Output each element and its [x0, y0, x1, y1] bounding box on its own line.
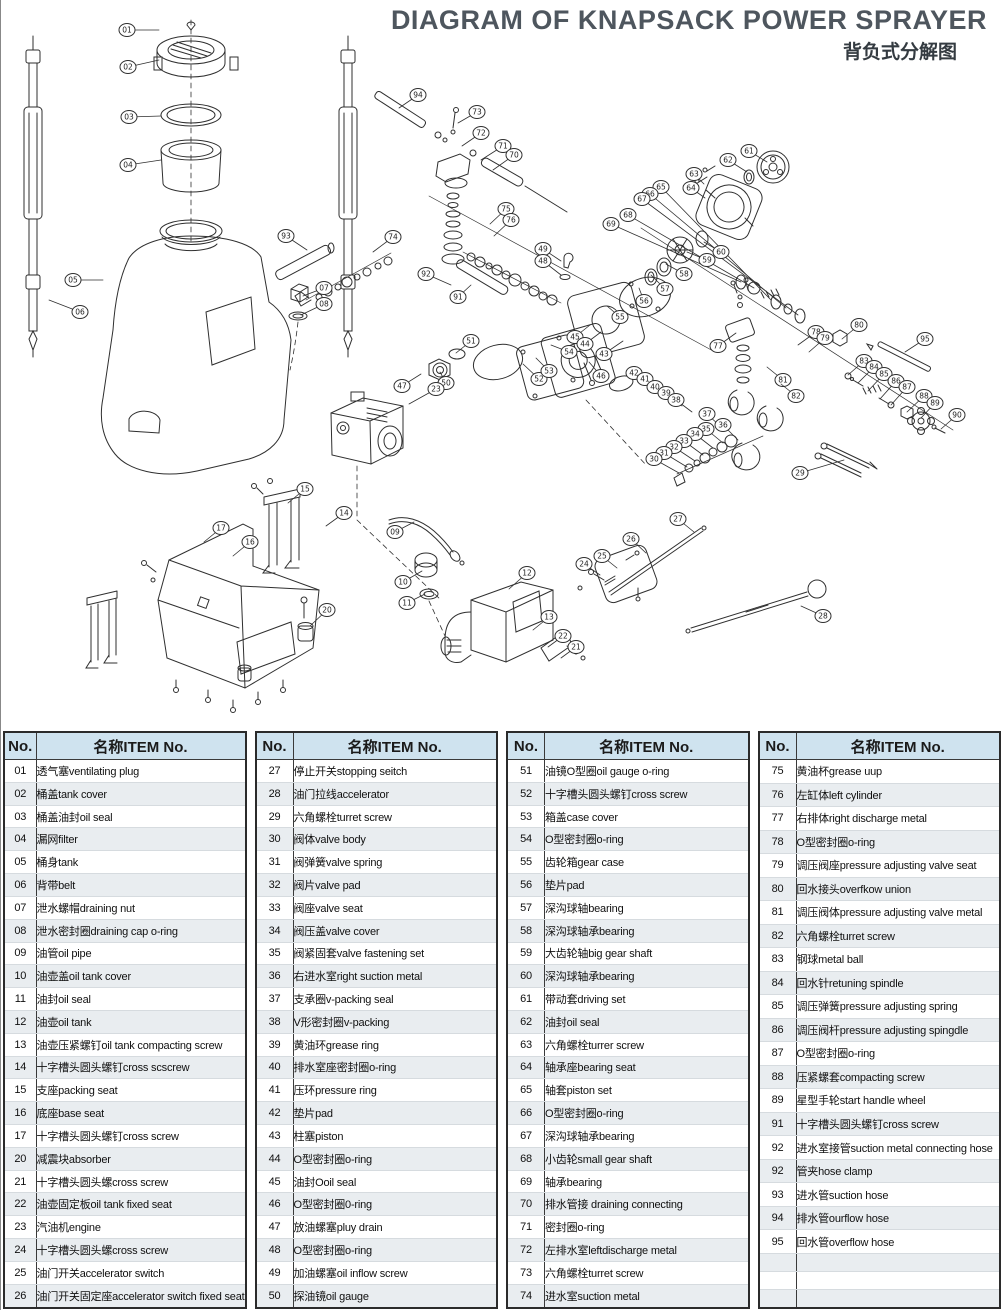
part-no-cell: 92 [759, 1159, 797, 1183]
part-item-cell: 右进水室right suction metal [293, 965, 497, 988]
table-row: 51油镜O型圈oil gauge o-ring [507, 760, 749, 783]
part-item-cell: 支承圈v-packing seal [293, 988, 497, 1011]
table-row: 13油壶压紧螺钉oil tank compacting screw [4, 1033, 246, 1056]
part-callout-number: 22 [558, 632, 568, 641]
part-no-cell: 86 [759, 1018, 797, 1042]
oil-tank-drawing [415, 553, 585, 663]
part-callout-number: 55 [615, 313, 625, 322]
table-row: 10油壶盖oil tank cover [4, 965, 246, 988]
table-row: 89星型手轮start handle wheel [759, 1089, 1001, 1113]
table-row: 64轴承座bearing seat [507, 1056, 749, 1079]
no-column-header: No. [256, 732, 294, 760]
part-no-cell: 94 [759, 1206, 797, 1230]
part-callout-number: 60 [716, 248, 726, 257]
part-item-cell: 回水管overflow hose [796, 1230, 1000, 1254]
part-no-cell: 47 [256, 1216, 294, 1239]
part-no-cell: 34 [256, 919, 294, 942]
part-no-cell: 65 [507, 1079, 545, 1102]
table-row: 75黄油杯grease uup [759, 760, 1001, 784]
table-row: 16底座base seat [4, 1102, 246, 1125]
part-no-cell: 85 [759, 995, 797, 1019]
part-no-cell [759, 1289, 797, 1308]
part-item-cell: 排水管ourflow hose [796, 1206, 1000, 1230]
part-no-cell: 28 [256, 782, 294, 805]
part-item-cell: 排水管接 draining connecting [545, 1193, 749, 1216]
part-callout-number: 04 [123, 161, 133, 170]
part-no-cell: 36 [256, 965, 294, 988]
no-column-header: No. [4, 732, 36, 760]
table-row: 69轴承bearing [507, 1170, 749, 1193]
part-item-cell: 油门开关accelerator switch [36, 1261, 245, 1284]
table-header-row: No.名称ITEM No. [507, 732, 749, 760]
part-no-cell: 57 [507, 896, 545, 919]
part-no-cell: 68 [507, 1147, 545, 1170]
part-callout-number: 10 [398, 578, 408, 587]
part-no-cell: 03 [4, 805, 36, 828]
part-callout-number: 57 [660, 285, 670, 294]
table-row: 76左缸体left cylinder [759, 783, 1001, 807]
accelerator-plate-drawing [578, 526, 706, 605]
part-no-cell: 71 [507, 1216, 545, 1239]
part-item-cell: 回水针retuning spindle [796, 971, 1000, 995]
part-no-cell: 23 [4, 1216, 36, 1239]
item-column-header: 名称ITEM No. [796, 732, 1000, 760]
part-callout-number: 70 [509, 151, 519, 160]
part-no-cell: 04 [4, 828, 36, 851]
part-no-cell: 79 [759, 854, 797, 878]
part-item-cell: 泄水密封圈draining cap o-ring [36, 919, 245, 942]
part-callout-number: 25 [597, 552, 607, 561]
table-row: 40排水室座密封圈o-ring [256, 1056, 498, 1079]
table-row: 86调压阀杆pressure adjusting spingdle [759, 1018, 1001, 1042]
table-row: 22油壶固定板oil tank fixed seat [4, 1193, 246, 1216]
table-row: 81调压阀体pressure adjusting valve metal [759, 901, 1001, 925]
part-no-cell: 25 [4, 1261, 36, 1284]
table-row: 06背带belt [4, 874, 246, 897]
part-callout-number: 52 [534, 375, 544, 384]
part-item-cell: 泄水螺帽draining nut [36, 896, 245, 919]
part-item-cell: O型密封圈0-ring [293, 1193, 497, 1216]
page-header: DIAGRAM OF KNAPSACK POWER SPRAYER 背负式分解图 [1, 5, 987, 64]
shoulder-strap-drawing-right [339, 36, 357, 357]
part-item-cell: 油壶压紧螺钉oil tank compacting screw [36, 1033, 245, 1056]
part-no-cell: 55 [507, 851, 545, 874]
part-no-cell: 45 [256, 1170, 294, 1193]
table-row: 47放油螺塞pluy drain [256, 1216, 498, 1239]
part-callout-number: 36 [718, 421, 728, 430]
part-item-cell: 十字槽头圆头螺钉cross screw [796, 1112, 1000, 1136]
part-no-cell: 70 [507, 1193, 545, 1216]
part-item-cell: 箱盖case cover [545, 805, 749, 828]
table-row [759, 1271, 1001, 1289]
part-callout-number: 06 [75, 308, 85, 317]
part-no-cell: 78 [759, 830, 797, 854]
table-row: 48O型密封圈o-ring [256, 1239, 498, 1262]
part-callout-number: 17 [216, 524, 226, 533]
part-no-cell: 54 [507, 828, 545, 851]
part-no-cell: 14 [4, 1056, 36, 1079]
table-row: 52十字槽头圆头螺钉cross screw [507, 782, 749, 805]
part-no-cell: 66 [507, 1102, 545, 1125]
table-row: 21十字槽头圆头螺cross screw [4, 1170, 246, 1193]
part-item-cell: 加油螺塞oil inflow screw [293, 1261, 497, 1284]
pump-body-drawing [429, 253, 676, 408]
part-callout-number: 38 [671, 396, 681, 405]
part-item-cell: 油封oil seal [36, 988, 245, 1011]
table-row: 71密封圈o-ring [507, 1216, 749, 1239]
part-callout-number: 77 [713, 342, 723, 351]
table-row: 92管夹hose clamp [759, 1159, 1001, 1183]
table-row: 91十字槽头圆头螺钉cross screw [759, 1112, 1001, 1136]
part-callout-number: 16 [245, 538, 255, 547]
part-callout-number: 74 [388, 233, 398, 242]
table-row: 29六角螺栓turret screw [256, 805, 498, 828]
part-callout-number: 54 [564, 348, 574, 357]
part-item-cell: 支座packing seat [36, 1079, 245, 1102]
table-row: 94排水管ourflow hose [759, 1206, 1001, 1230]
parts-table-group-4: No.名称ITEM No.75黄油杯grease uup76左缸体left cy… [758, 731, 1002, 1309]
part-callout-number: 30 [649, 455, 659, 464]
part-item-cell: 六角螺栓turrer screw [545, 1033, 749, 1056]
part-callout-number: 94 [413, 91, 423, 100]
part-callout-number: 56 [639, 297, 649, 306]
table-row: 27停止开关stopping seitch [256, 760, 498, 783]
table-row: 54O型密封圈o-ring [507, 828, 749, 851]
table-row: 50探油镜oil gauge [256, 1284, 498, 1308]
table-row: 63六角螺栓turrer screw [507, 1033, 749, 1056]
part-item-cell: 进水室suction metal [545, 1284, 749, 1308]
table-row [759, 1253, 1001, 1271]
table-header-row: No.名称ITEM No. [256, 732, 498, 760]
table-row: 82六角螺栓turret screw [759, 924, 1001, 948]
part-item-cell: 小齿轮small gear shaft [545, 1147, 749, 1170]
part-no-cell: 48 [256, 1239, 294, 1262]
part-callout-number: 63 [689, 170, 699, 179]
part-callout-number: 11 [402, 599, 412, 608]
part-no-cell: 62 [507, 1010, 545, 1033]
pressure-valve-drawing [725, 278, 945, 435]
part-no-cell: 21 [4, 1170, 36, 1193]
item-column-header: 名称ITEM No. [36, 732, 245, 760]
table-row: 92进水室接管suction metal connecting hose [759, 1136, 1001, 1160]
table-row: 04漏网filter [4, 828, 246, 851]
table-row: 36右进水室right suction metal [256, 965, 498, 988]
part-no-cell: 84 [759, 971, 797, 995]
part-no-cell: 41 [256, 1079, 294, 1102]
part-no-cell: 29 [256, 805, 294, 828]
table-row: 68小齿轮small gear shaft [507, 1147, 749, 1170]
part-callout-number: 65 [656, 183, 666, 192]
part-callout-number: 76 [506, 216, 516, 225]
part-no-cell: 42 [256, 1102, 294, 1125]
table-row: 74进水室suction metal [507, 1284, 749, 1308]
part-item-cell: 黄油环grease ring [293, 1033, 497, 1056]
valve-stack-drawing [436, 108, 567, 265]
no-column-header: No. [507, 732, 545, 760]
part-item-cell: 调压阀杆pressure adjusting spingdle [796, 1018, 1000, 1042]
part-no-cell: 80 [759, 877, 797, 901]
base-frame-drawing [158, 524, 319, 688]
part-no-cell: 11 [4, 988, 36, 1011]
part-callout-number: 27 [673, 515, 683, 524]
part-callout-number: 73 [472, 108, 482, 117]
part-item-cell: 阀弹簧valve spring [293, 851, 497, 874]
part-item-cell: 钢球metal ball [796, 948, 1000, 972]
part-no-cell: 56 [507, 874, 545, 897]
part-no-cell: 02 [4, 782, 36, 805]
gear-train-drawing [645, 151, 805, 323]
part-item-cell: 六角螺栓turret screw [545, 1261, 749, 1284]
part-callout-number: 87 [902, 383, 912, 392]
table-row: 93进水管suction hose [759, 1183, 1001, 1207]
part-callout-number: 89 [930, 399, 940, 408]
part-item-cell: 油壶oil tank [36, 1010, 245, 1033]
part-callout-number: 48 [538, 257, 548, 266]
part-item-cell: 油门拉线accelerator [293, 782, 497, 805]
part-item-cell: 阀座valve seat [293, 896, 497, 919]
no-column-header: No. [759, 732, 797, 760]
table-row: 58深沟球轴承bearing [507, 919, 749, 942]
part-item-cell: 大齿轮轴big gear shaft [545, 942, 749, 965]
part-item-cell: 六角螺栓turret screw [796, 924, 1000, 948]
part-no-cell: 08 [4, 919, 36, 942]
part-no-cell: 93 [759, 1183, 797, 1207]
table-row: 59大齿轮轴big gear shaft [507, 942, 749, 965]
table-row: 23汽油机engine [4, 1216, 246, 1239]
parts-table-group-1: No.名称ITEM No.01透气塞ventilating plug02桶盖ta… [3, 731, 247, 1309]
table-row: 15支座packing seat [4, 1079, 246, 1102]
part-item-cell: 停止开关stopping seitch [293, 760, 497, 783]
part-callout-number: 29 [795, 469, 805, 478]
part-item-cell: 十字槽头圆头螺cross screw [36, 1239, 245, 1262]
part-callout-number: 53 [544, 367, 554, 376]
shoulder-strap-drawing [24, 36, 42, 357]
part-item-cell: O型密封圈o-ring [293, 1239, 497, 1262]
part-callout-number: 51 [466, 337, 476, 346]
table-header-row: No.名称ITEM No. [4, 732, 246, 760]
part-callout-number: 67 [637, 195, 647, 204]
part-item-cell: 密封圈o-ring [545, 1216, 749, 1239]
part-item-cell: V形密封圈v-packing [293, 1010, 497, 1033]
table-row: 44O型密封圈o-ring [256, 1147, 498, 1170]
part-callout-number: 92 [421, 270, 431, 279]
part-callout-number: 12 [522, 569, 532, 578]
oil-pipe-drawing [389, 518, 464, 565]
part-no-cell: 69 [507, 1170, 545, 1193]
part-no-cell: 10 [4, 965, 36, 988]
table-row: 77右排体right discharge metal [759, 807, 1001, 831]
part-no-cell: 51 [507, 760, 545, 783]
part-item-cell: 油壶固定板oil tank fixed seat [36, 1193, 245, 1216]
part-no-cell: 40 [256, 1056, 294, 1079]
part-callout-number: 20 [322, 606, 332, 615]
part-item-cell: 垫片pad [293, 1102, 497, 1125]
part-item-cell: 深沟球轴承bearing [545, 919, 749, 942]
part-item-cell: O型密封圈o-ring [545, 828, 749, 851]
part-no-cell: 95 [759, 1230, 797, 1254]
table-row: 53箱盖case cover [507, 805, 749, 828]
part-no-cell: 07 [4, 896, 36, 919]
part-no-cell: 88 [759, 1065, 797, 1089]
part-item-cell: 油镜O型圈oil gauge o-ring [545, 760, 749, 783]
part-item-cell: 桶身tank [36, 851, 245, 874]
part-item-cell: 桶盖tank cover [36, 782, 245, 805]
table-row: 01透气塞ventilating plug [4, 760, 246, 783]
part-callout-number: 75 [501, 205, 511, 214]
part-item-cell [796, 1253, 1000, 1271]
item-column-header: 名称ITEM No. [293, 732, 497, 760]
table-row: 12油壶oil tank [4, 1010, 246, 1033]
table-row: 34阀压盖valve cover [256, 919, 498, 942]
part-no-cell: 33 [256, 896, 294, 919]
part-no-cell: 53 [507, 805, 545, 828]
part-item-cell: 放油螺塞pluy drain [293, 1216, 497, 1239]
table-row: 24十字槽头圆头螺cross screw [4, 1239, 246, 1262]
part-callout-number: 90 [952, 411, 962, 420]
part-item-cell: 阀紧固套valve fastening set [293, 942, 497, 965]
part-callout-number: 71 [498, 142, 508, 151]
part-no-cell: 73 [507, 1261, 545, 1284]
table-row: 62油封oil seal [507, 1010, 749, 1033]
part-item-cell: 进水室接管suction metal connecting hose [796, 1136, 1000, 1160]
part-no-cell: 60 [507, 965, 545, 988]
table-row: 80回水接头overfkow union [759, 877, 1001, 901]
part-no-cell: 58 [507, 919, 545, 942]
part-no-cell: 46 [256, 1193, 294, 1216]
part-callout-number: 44 [580, 340, 590, 349]
table-row: 78O型密封圈o-ring [759, 830, 1001, 854]
part-item-cell: 油管oil pipe [36, 942, 245, 965]
part-item-cell [796, 1271, 1000, 1289]
part-no-cell: 24 [4, 1239, 36, 1262]
part-item-cell: O型密封圈o-ring [293, 1147, 497, 1170]
part-item-cell: O型密封圈o-ring [545, 1102, 749, 1125]
part-no-cell: 83 [759, 948, 797, 972]
table-row: 03桶盖油封oil seal [4, 805, 246, 828]
part-no-cell: 74 [507, 1284, 545, 1308]
part-callout-number: 80 [854, 321, 864, 330]
part-callout-number: 69 [606, 220, 616, 229]
table-row: 07泄水螺帽draining nut [4, 896, 246, 919]
part-item-cell: 调压阀座pressure adjusting valve seat [796, 854, 1000, 878]
part-item-cell: 漏网filter [36, 828, 245, 851]
part-no-cell: 61 [507, 988, 545, 1011]
exploded-diagram: 0102030405060708939473727170636465666768… [1, 0, 1002, 730]
table-row: 02桶盖tank cover [4, 782, 246, 805]
table-row: 11油封oil seal [4, 988, 246, 1011]
diagram-area: 0102030405060708939473727170636465666768… [1, 0, 1002, 730]
part-no-cell: 27 [256, 760, 294, 783]
table-row: 39黄油环grease ring [256, 1033, 498, 1056]
part-item-cell: 深沟球轴bearing [545, 896, 749, 919]
part-callout-number: 91 [453, 293, 463, 302]
part-item-cell: 十字槽头圆头螺钉cross screw [36, 1125, 245, 1148]
part-callout-number: 08 [319, 300, 329, 309]
table-row: 09油管oil pipe [4, 942, 246, 965]
part-no-cell: 09 [4, 942, 36, 965]
part-no-cell: 49 [256, 1261, 294, 1284]
part-no-cell: 44 [256, 1147, 294, 1170]
part-no-cell: 76 [759, 783, 797, 807]
part-no-cell: 39 [256, 1033, 294, 1056]
table-row: 72左排水室leftdischarge metal [507, 1239, 749, 1262]
table-row: 41压环pressure ring [256, 1079, 498, 1102]
part-callout-number: 95 [920, 335, 930, 344]
part-callout-number: 05 [68, 276, 78, 285]
part-callout-number: 43 [599, 350, 609, 359]
engine-drawing [331, 392, 647, 600]
table-row: 14十字槽头圆头螺钉cross scscrew [4, 1056, 246, 1079]
table-row: 45油封Ooil seal [256, 1170, 498, 1193]
part-callout-number: 79 [820, 334, 830, 343]
part-callout-number: 93 [281, 232, 291, 241]
axis-line [429, 196, 715, 352]
part-callout-number: 64 [686, 184, 696, 193]
part-item-cell: 油壶盖oil tank cover [36, 965, 245, 988]
part-item-cell: 轴套piston set [545, 1079, 749, 1102]
table-row: 56垫片pad [507, 874, 749, 897]
part-callout-number: 03 [124, 113, 134, 122]
part-callout-number: 15 [300, 485, 310, 494]
part-no-cell: 22 [4, 1193, 36, 1216]
table-row: 46O型密封圈0-ring [256, 1193, 498, 1216]
table-row: 65轴套piston set [507, 1079, 749, 1102]
callout-layer: 0102030405060708939473727170636465666768… [49, 24, 965, 659]
table-row: 88压紧螺套compacting screw [759, 1065, 1001, 1089]
part-item-cell: 齿轮箱gear case [545, 851, 749, 874]
part-item-cell: 桶盖油封oil seal [36, 805, 245, 828]
part-item-cell: 六角螺栓turret screw [293, 805, 497, 828]
part-no-cell: 82 [759, 924, 797, 948]
table-row: 08泄水密封圈draining cap o-ring [4, 919, 246, 942]
part-no-cell: 06 [4, 874, 36, 897]
page-subtitle: 背负式分解图 [1, 37, 957, 64]
part-item-cell: 进水管suction hose [796, 1183, 1000, 1207]
table-row: 30阀体valve body [256, 828, 498, 851]
part-item-cell: 左缸体left cylinder [796, 783, 1000, 807]
part-no-cell: 81 [759, 901, 797, 925]
part-item-cell: 轴承座bearing seat [545, 1056, 749, 1079]
part-callout-number: 58 [679, 270, 689, 279]
part-item-cell: 垫片pad [545, 874, 749, 897]
part-no-cell: 38 [256, 1010, 294, 1033]
part-item-cell: 阀片valve pad [293, 874, 497, 897]
part-no-cell: 05 [4, 851, 36, 874]
table-row: 35阀紧固套valve fastening set [256, 942, 498, 965]
part-callout-number: 41 [640, 375, 650, 384]
part-item-cell: 星型手轮start handle wheel [796, 1089, 1000, 1113]
part-no-cell: 30 [256, 828, 294, 851]
table-row: 67深沟球轴承bearing [507, 1125, 749, 1148]
part-item-cell: 汽油机engine [36, 1216, 245, 1239]
table-row: 85调压弹簧pressure adjusting spring [759, 995, 1001, 1019]
table-row: 70排水管接 draining connecting [507, 1193, 749, 1216]
bracket-left-drawing [86, 561, 156, 669]
part-item-cell: 排水室座密封圈o-ring [293, 1056, 497, 1079]
part-item-cell: 背带belt [36, 874, 245, 897]
table-row: 66O型密封圈o-ring [507, 1102, 749, 1125]
part-no-cell: 26 [4, 1284, 36, 1308]
part-callout-number: 62 [723, 156, 733, 165]
part-item-cell: 压环pressure ring [293, 1079, 497, 1102]
part-no-cell: 15 [4, 1079, 36, 1102]
part-item-cell: 阀体valve body [293, 828, 497, 851]
item-column-header: 名称ITEM No. [545, 732, 749, 760]
tank-body-drawing [101, 236, 291, 474]
part-callout-number: 47 [397, 382, 407, 391]
part-callout-number: 24 [579, 560, 589, 569]
part-no-cell [759, 1253, 797, 1271]
